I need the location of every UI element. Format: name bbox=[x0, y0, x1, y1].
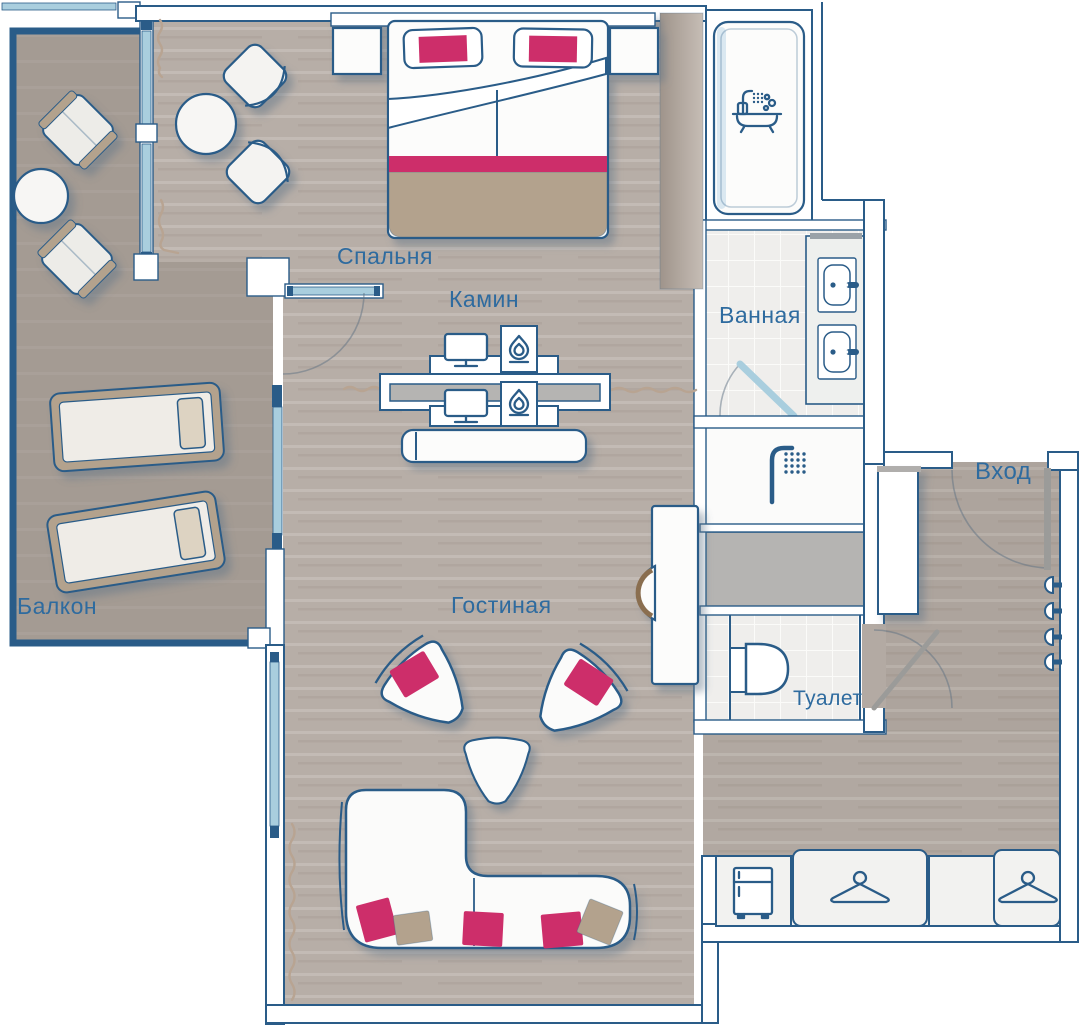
round-table bbox=[176, 94, 236, 154]
living-left-wall bbox=[266, 645, 284, 1025]
wardrobe bbox=[994, 850, 1060, 926]
floor-plan-drawing bbox=[0, 0, 1080, 1025]
toilet-label: Туалет bbox=[793, 687, 862, 711]
toilet-icon bbox=[730, 644, 788, 694]
sun-lounger bbox=[49, 382, 224, 472]
fireplace-insert-top bbox=[501, 326, 537, 372]
entry-cabinet bbox=[877, 466, 921, 614]
right-outer-wall bbox=[1060, 452, 1078, 942]
bedroom-label: Спальня bbox=[337, 243, 433, 270]
floor-plan: Спальня Камин Ванная Вход Гостиная Туале… bbox=[0, 0, 1080, 1025]
built-in-closet bbox=[704, 532, 864, 608]
living-bottom-wall bbox=[266, 1005, 718, 1023]
shower-room bbox=[704, 426, 866, 528]
balcony-label: Балкон bbox=[17, 593, 97, 620]
living-room-label: Гостиная bbox=[451, 592, 552, 619]
sofa-cushion bbox=[462, 911, 504, 947]
closet-row bbox=[716, 850, 1060, 926]
balcony-table bbox=[14, 169, 68, 223]
desk bbox=[652, 506, 698, 684]
sink-icon bbox=[818, 258, 859, 312]
sink-icon bbox=[818, 325, 859, 379]
pillow bbox=[514, 28, 593, 67]
wardrobe bbox=[793, 850, 927, 926]
bedroom-wardrobe-strip bbox=[660, 13, 703, 289]
bathtub-room bbox=[706, 10, 812, 224]
vanity bbox=[806, 233, 866, 404]
pillow bbox=[403, 28, 482, 69]
entrance-top-wall-left bbox=[874, 452, 952, 468]
entrance-top-wall-right bbox=[1048, 452, 1078, 470]
fridge-icon bbox=[734, 868, 772, 918]
nightstand-left bbox=[333, 28, 381, 74]
bathroom-label: Ванная bbox=[719, 302, 801, 329]
entry-door-leaf bbox=[1044, 468, 1051, 570]
sofa-cushion bbox=[393, 911, 433, 946]
bed bbox=[388, 21, 608, 238]
bench bbox=[402, 430, 586, 462]
fireplace-insert-bottom bbox=[501, 382, 537, 426]
entrance-label: Вход bbox=[975, 458, 1031, 486]
fireplace-label: Камин bbox=[449, 286, 519, 313]
nightstand-right bbox=[610, 28, 658, 74]
